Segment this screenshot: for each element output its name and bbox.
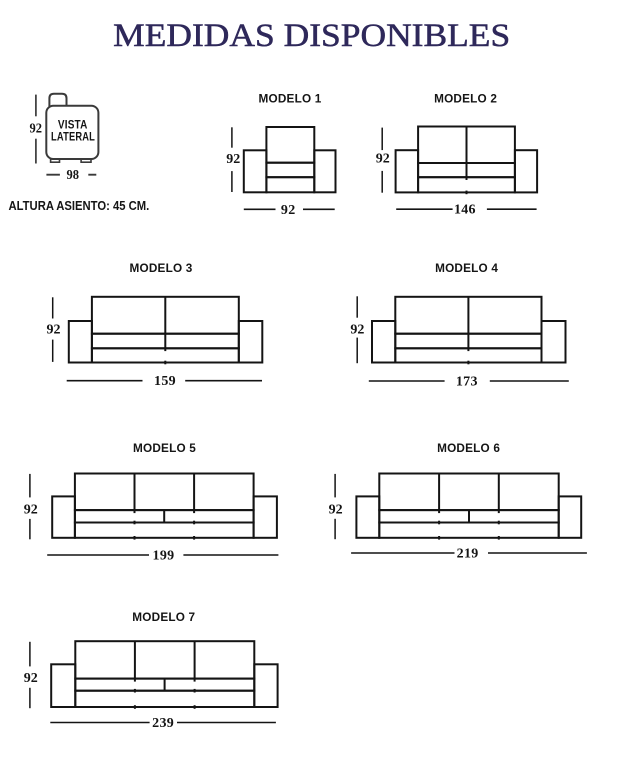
svg-text:92: 92 — [350, 323, 364, 338]
svg-text:98: 98 — [67, 168, 80, 183]
svg-text:146: 146 — [454, 203, 476, 218]
svg-text:MODELO 1: MODELO 1 — [259, 91, 322, 105]
svg-text:199: 199 — [153, 549, 175, 564]
svg-text:92: 92 — [29, 121, 42, 136]
svg-text:MODELO 5: MODELO 5 — [133, 441, 196, 455]
svg-text:MEDIDAS DISPONIBLES: MEDIDAS DISPONIBLES — [113, 18, 510, 54]
svg-text:92: 92 — [376, 152, 390, 167]
svg-text:MODELO 6: MODELO 6 — [437, 441, 500, 455]
svg-text:92: 92 — [329, 503, 343, 518]
svg-text:92: 92 — [281, 203, 296, 218]
svg-text:ALTURA ASIENTO: 45 CM.: ALTURA ASIENTO: 45 CM. — [9, 198, 150, 213]
svg-text:MODELO 2: MODELO 2 — [434, 91, 497, 105]
svg-text:173: 173 — [456, 375, 478, 390]
svg-text:92: 92 — [226, 152, 240, 167]
svg-text:MODELO 3: MODELO 3 — [130, 261, 193, 275]
svg-text:239: 239 — [152, 716, 174, 731]
svg-text:LATERAL: LATERAL — [51, 131, 95, 143]
svg-text:92: 92 — [47, 322, 61, 337]
svg-text:159: 159 — [154, 374, 176, 389]
svg-text:MODELO 7: MODELO 7 — [132, 610, 195, 624]
svg-text:92: 92 — [24, 503, 38, 518]
svg-text:VISTA: VISTA — [58, 119, 88, 131]
svg-text:92: 92 — [24, 671, 38, 686]
svg-text:MODELO 4: MODELO 4 — [435, 261, 498, 275]
svg-text:219: 219 — [457, 547, 479, 562]
